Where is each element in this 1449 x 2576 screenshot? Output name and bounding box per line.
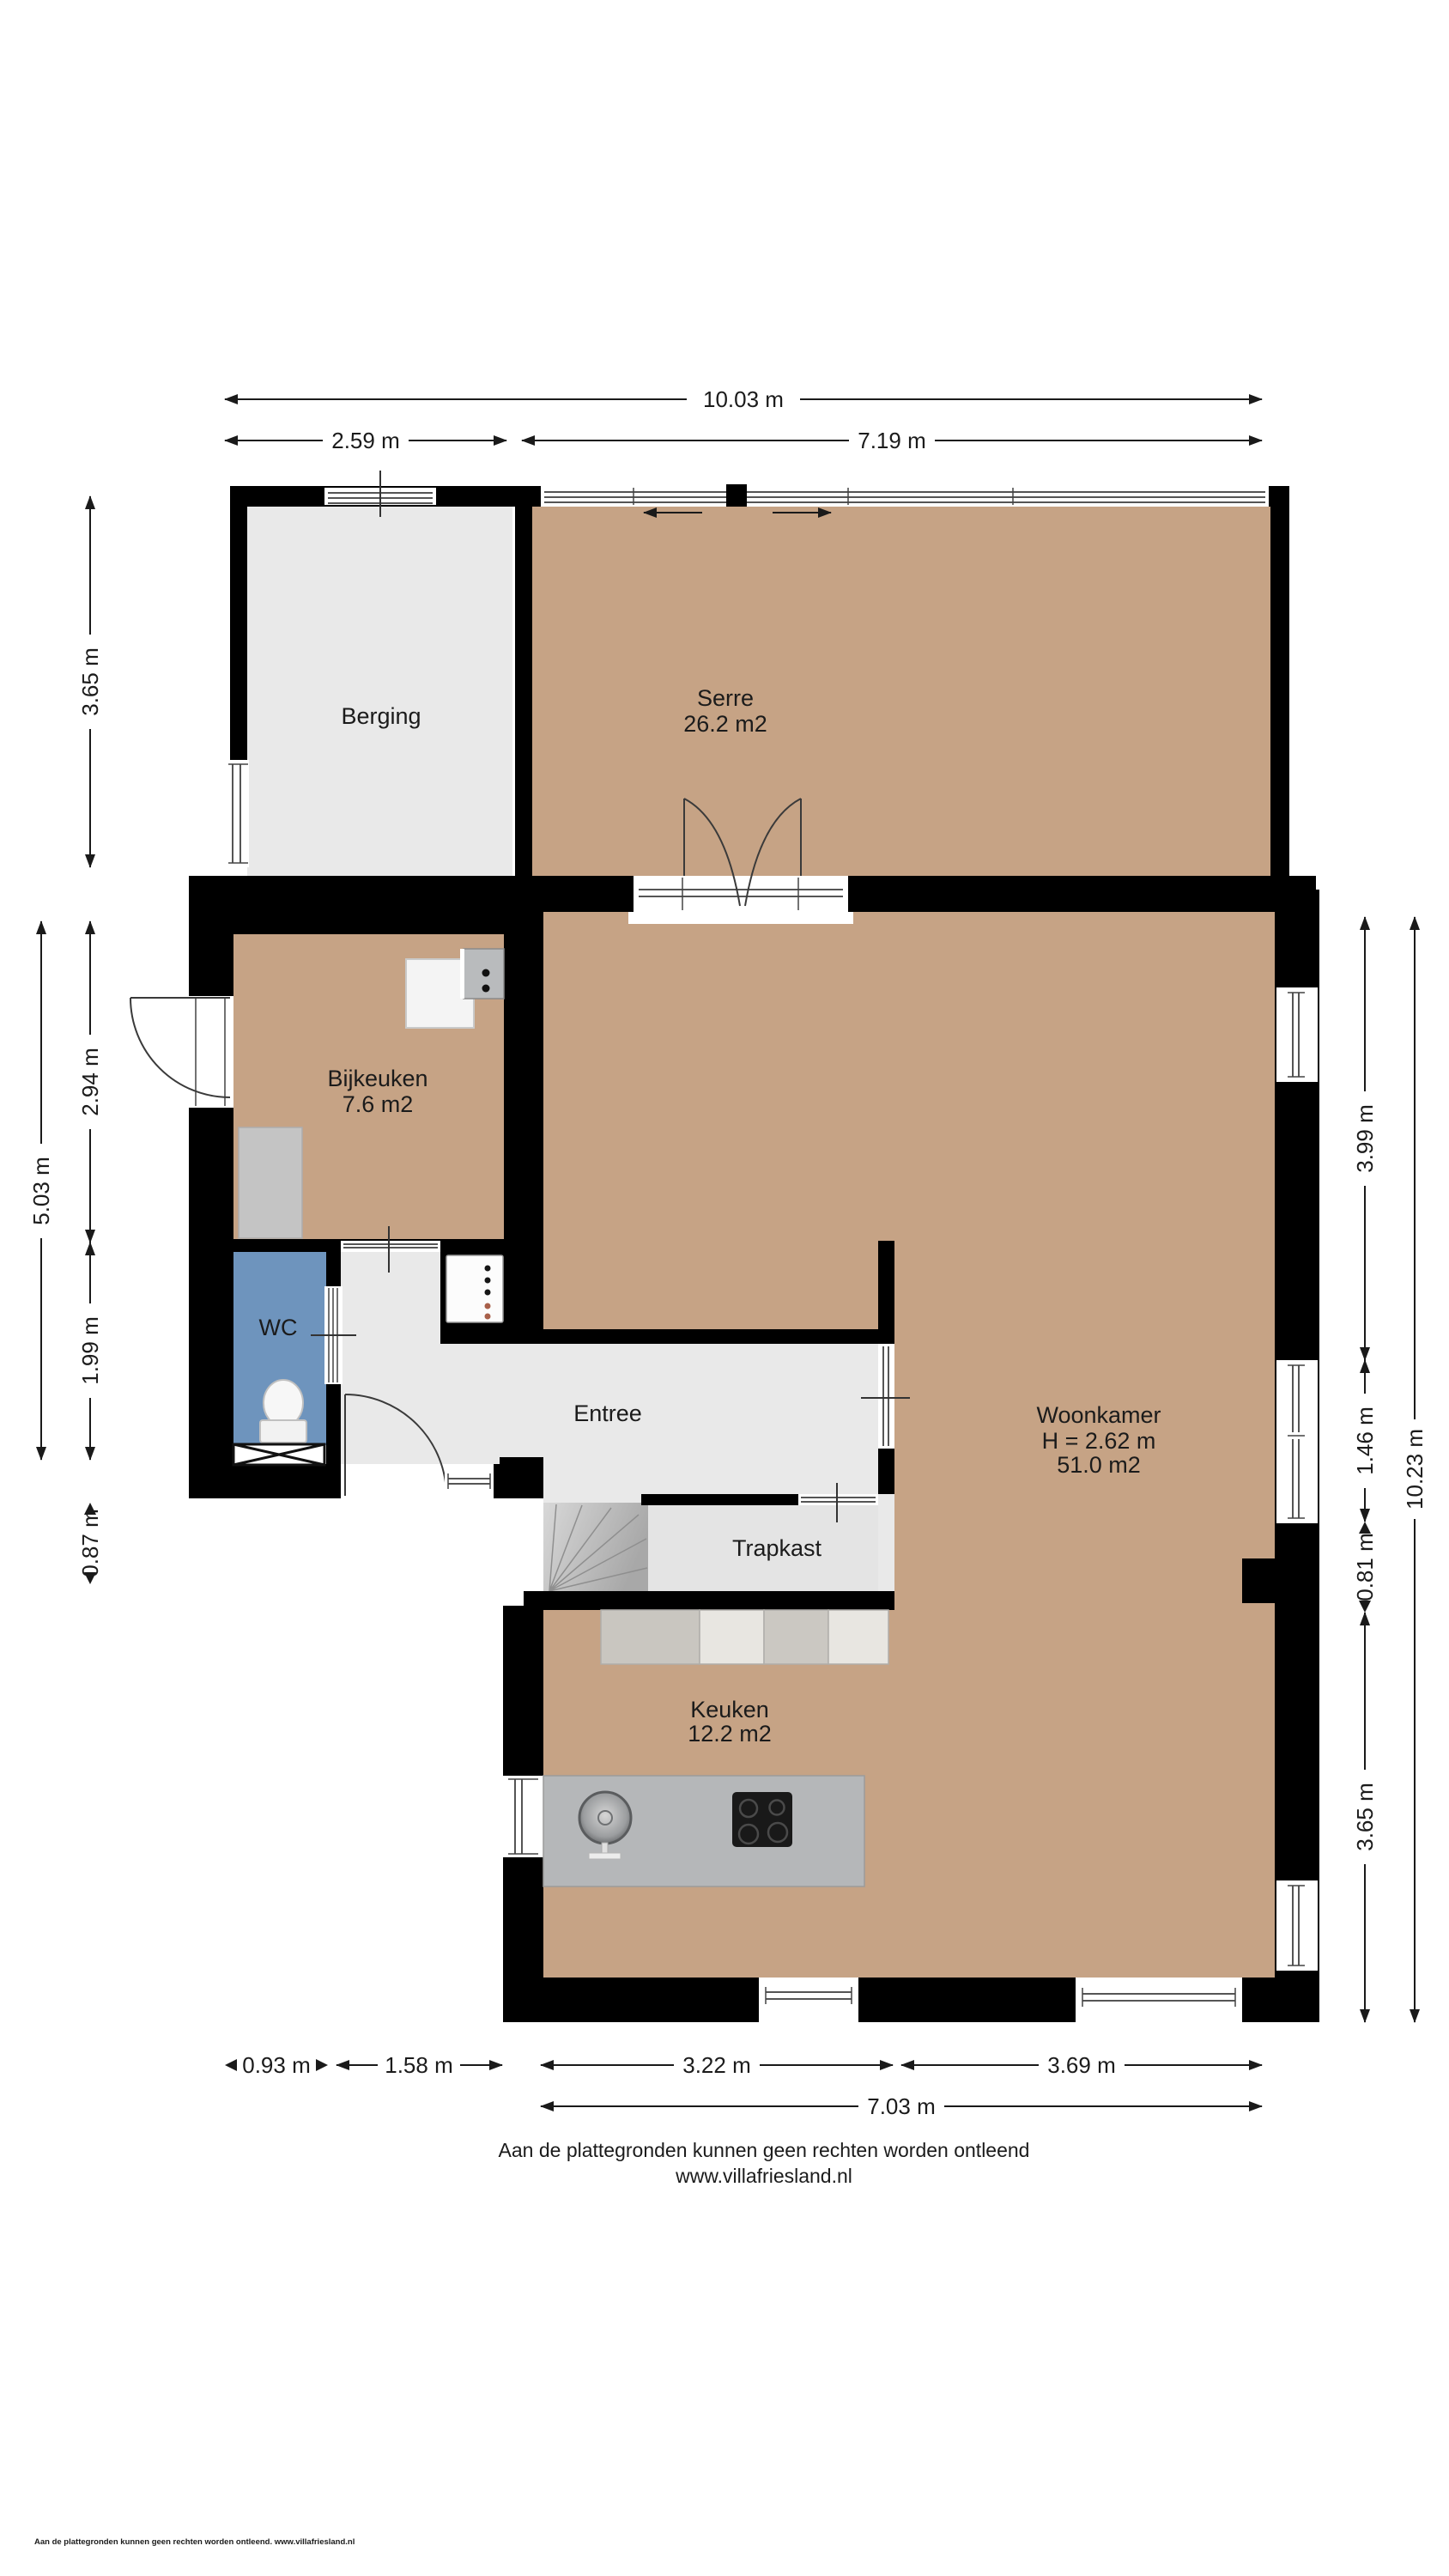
room-label-serre: Serre <box>697 685 754 711</box>
dimension-bottom-total: 7.03 m <box>541 2093 1262 2119</box>
berging-floor <box>247 507 512 876</box>
dimension-left-bijkeuken: 2.94 m <box>76 921 105 1242</box>
room-label-bijkeuken: Bijkeuken <box>327 1066 427 1091</box>
serre-floor <box>532 507 1276 876</box>
dimension-bottom-entree: 1.58 m <box>336 2052 502 2078</box>
room-height-woonkamer: H = 2.62 m <box>1042 1428 1156 1454</box>
dimension-bottom-wc: 0.93 m <box>225 2052 328 2078</box>
window-right-1 <box>1276 987 1318 1082</box>
room-label-trapkast: Trapkast <box>732 1535 822 1561</box>
kitchen-cabinets <box>601 1610 888 1664</box>
floorplan-drawing: Berging Serre 26.2 m2 Bijkeuken 7.6 m2 W… <box>0 0 1449 2576</box>
svg-text:10.23 m: 10.23 m <box>1402 1429 1428 1510</box>
stairs <box>543 1503 648 1591</box>
bijkeuken-freezer <box>239 1127 302 1238</box>
window-right-3 <box>1276 1880 1318 1971</box>
kitchen-island <box>543 1776 864 1886</box>
dimension-bottom-keuken: 3.22 m <box>541 2052 893 2078</box>
svg-text:10.03 m: 10.03 m <box>703 386 784 412</box>
window-right-2 <box>1276 1360 1318 1523</box>
chimney-pier <box>1242 1558 1275 1603</box>
room-label-keuken: Keuken <box>690 1697 769 1722</box>
room-area-keuken: 12.2 m2 <box>688 1721 772 1747</box>
room-label-entree: Entree <box>573 1400 642 1426</box>
toilet <box>260 1380 306 1443</box>
svg-text:5.03 m: 5.03 m <box>28 1157 54 1225</box>
room-label-woonkamer: Woonkamer <box>1036 1402 1161 1428</box>
svg-text:0.87 m: 0.87 m <box>77 1509 103 1577</box>
doormat <box>233 1444 324 1465</box>
window-serre-front <box>541 484 1269 507</box>
dimension-left-berging: 3.65 m <box>76 496 105 867</box>
svg-text:3.65 m: 3.65 m <box>77 647 103 716</box>
svg-text:2.59 m: 2.59 m <box>331 428 400 453</box>
svg-text:7.03 m: 7.03 m <box>867 2093 936 2119</box>
window-keuken-left <box>503 1776 543 1857</box>
disclaimer-line1: Aan de plattegronden kunnen geen rechten… <box>499 2139 1030 2161</box>
dimension-right-window: 1.46 m <box>1350 1360 1379 1522</box>
window-serre-woonkamer <box>628 876 853 924</box>
svg-text:0.93 m: 0.93 m <box>242 2052 311 2078</box>
dimension-bottom-woonkamer: 3.69 m <box>901 2052 1262 2078</box>
window-bottom-right <box>1076 1978 1242 2031</box>
window-berging-left <box>227 760 249 867</box>
svg-text:1.58 m: 1.58 m <box>385 2052 453 2078</box>
dimension-right-total: 10.23 m <box>1400 917 1429 2022</box>
dimension-top-right: 7.19 m <box>522 428 1262 453</box>
dimension-left-entree: 0.87 m <box>77 1503 103 1584</box>
print-footer: Aan de plattegronden kunnen geen rechten… <box>34 2537 355 2547</box>
svg-text:3.69 m: 3.69 m <box>1047 2052 1116 2078</box>
svg-text:1.46 m: 1.46 m <box>1352 1406 1378 1475</box>
window-bottom-left <box>759 1978 858 2031</box>
dimension-right-pier: 0.81 m <box>1352 1522 1378 1613</box>
dimension-left-wc: 1.99 m <box>76 1242 105 1460</box>
svg-text:1.99 m: 1.99 m <box>77 1316 103 1385</box>
room-area-serre: 26.2 m2 <box>683 711 767 737</box>
svg-text:0.81 m: 0.81 m <box>1352 1533 1378 1601</box>
dimension-top-left: 2.59 m <box>225 428 506 453</box>
svg-text:7.19 m: 7.19 m <box>858 428 926 453</box>
dimension-right-woonkamer-top: 3.99 m <box>1350 917 1379 1360</box>
window-front-sidelight <box>445 1464 494 1498</box>
svg-text:3.65 m: 3.65 m <box>1352 1783 1378 1851</box>
dimension-left-total: 5.03 m <box>27 921 56 1460</box>
dimension-top-total: 10.03 m <box>225 386 1262 412</box>
room-label-wc: WC <box>259 1315 298 1340</box>
room-area-bijkeuken: 7.6 m2 <box>343 1091 414 1117</box>
dimension-right-keuken: 3.65 m <box>1350 1613 1379 2022</box>
radiator <box>446 1255 503 1322</box>
room-area-woonkamer: 51.0 m2 <box>1057 1452 1141 1478</box>
floorplan-page: Berging Serre 26.2 m2 Bijkeuken 7.6 m2 W… <box>0 0 1449 2576</box>
room-label-berging: Berging <box>341 703 421 729</box>
cooktop <box>732 1792 792 1847</box>
svg-text:3.22 m: 3.22 m <box>682 2052 751 2078</box>
svg-text:3.99 m: 3.99 m <box>1352 1104 1378 1173</box>
disclaimer-line2: www.villafriesland.nl <box>675 2165 852 2187</box>
door-bijkeuken-exterior <box>130 996 233 1108</box>
svg-text:2.94 m: 2.94 m <box>77 1048 103 1116</box>
